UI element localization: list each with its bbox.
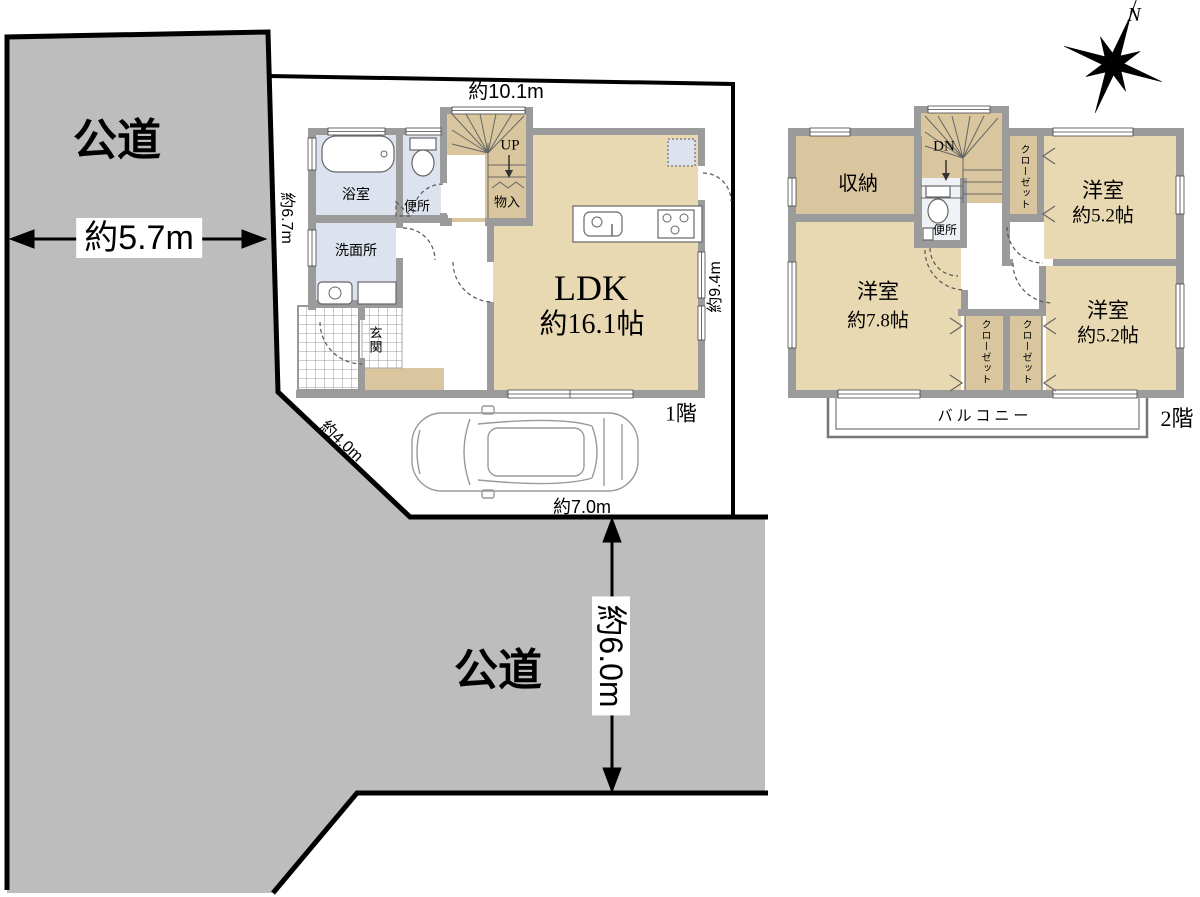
toilet1-label: 便所 [404,200,430,213]
bathtub-icon [322,136,394,172]
floor1-top-dim-label: 約10.1m [468,82,544,102]
compass-north-label: N [1127,5,1140,25]
dim-left-edge-label: 約6.7m [278,192,294,244]
road-bottom-label: 公道 [454,649,542,693]
ldk-label: LDK [554,270,628,306]
compass-rose-icon [1046,0,1185,131]
closet-left-label: クローゼット [979,319,989,385]
entrance-step [362,368,444,390]
porch-tiles [298,306,359,390]
floor1-right-dim-label: 約9.4m [708,261,724,313]
entrance-label: 玄関 [369,326,382,354]
kitchen-counter [573,206,702,242]
balcony-label: バルコニー [938,410,1033,425]
floor2-name-label: 2階 [1160,408,1193,430]
stairs1-label: UP [500,139,519,154]
car-icon [412,406,638,498]
closet-right-label: クローゼット [1020,319,1030,385]
toilet1-icon [410,138,436,176]
floor1-name-label: 1階 [665,404,697,425]
toilet2-label: 便所 [933,224,957,236]
bedroom-tr-label: 洋室 [1082,181,1124,202]
bedroom-br-label: 洋室 [1087,301,1129,322]
washroom-label: 洗面所 [335,245,377,259]
bathroom-label: 浴室 [342,189,370,203]
road-left-label: 公道 [73,119,161,163]
washbasin-icon [318,282,352,304]
floor2-plan [788,106,1184,437]
ldk-size-label: 約16.1帖 [539,311,644,339]
bedroom-tr-size-label: 約5.2帖 [1072,207,1134,226]
storage1-label: 物入 [494,196,520,209]
bedroom-l-size-label: 約7.8帖 [847,312,909,331]
closet-top-label: クローゼット [1018,144,1028,210]
road-bottom-width-label: 約6.0m [592,596,630,715]
storage2-label: 収納 [838,174,878,194]
road-left-width-label: 約5.7m [76,218,202,258]
site-plan-page: 公道 約5.7m 公道 約6.0m 約6.7m 約4.0m 約7.0m 約10.… [0,0,1200,897]
bedroom-br-size-label: 約5.2帖 [1077,327,1139,346]
stairs2-label: DN [933,140,955,155]
bedroom-l-label: 洋室 [857,282,899,303]
washing-machine-icon [358,282,396,304]
floorplan-graphics [0,0,1200,897]
refrigerator-space-icon [668,139,695,166]
dim-bottom-edge-label: 約7.0m [553,498,611,516]
